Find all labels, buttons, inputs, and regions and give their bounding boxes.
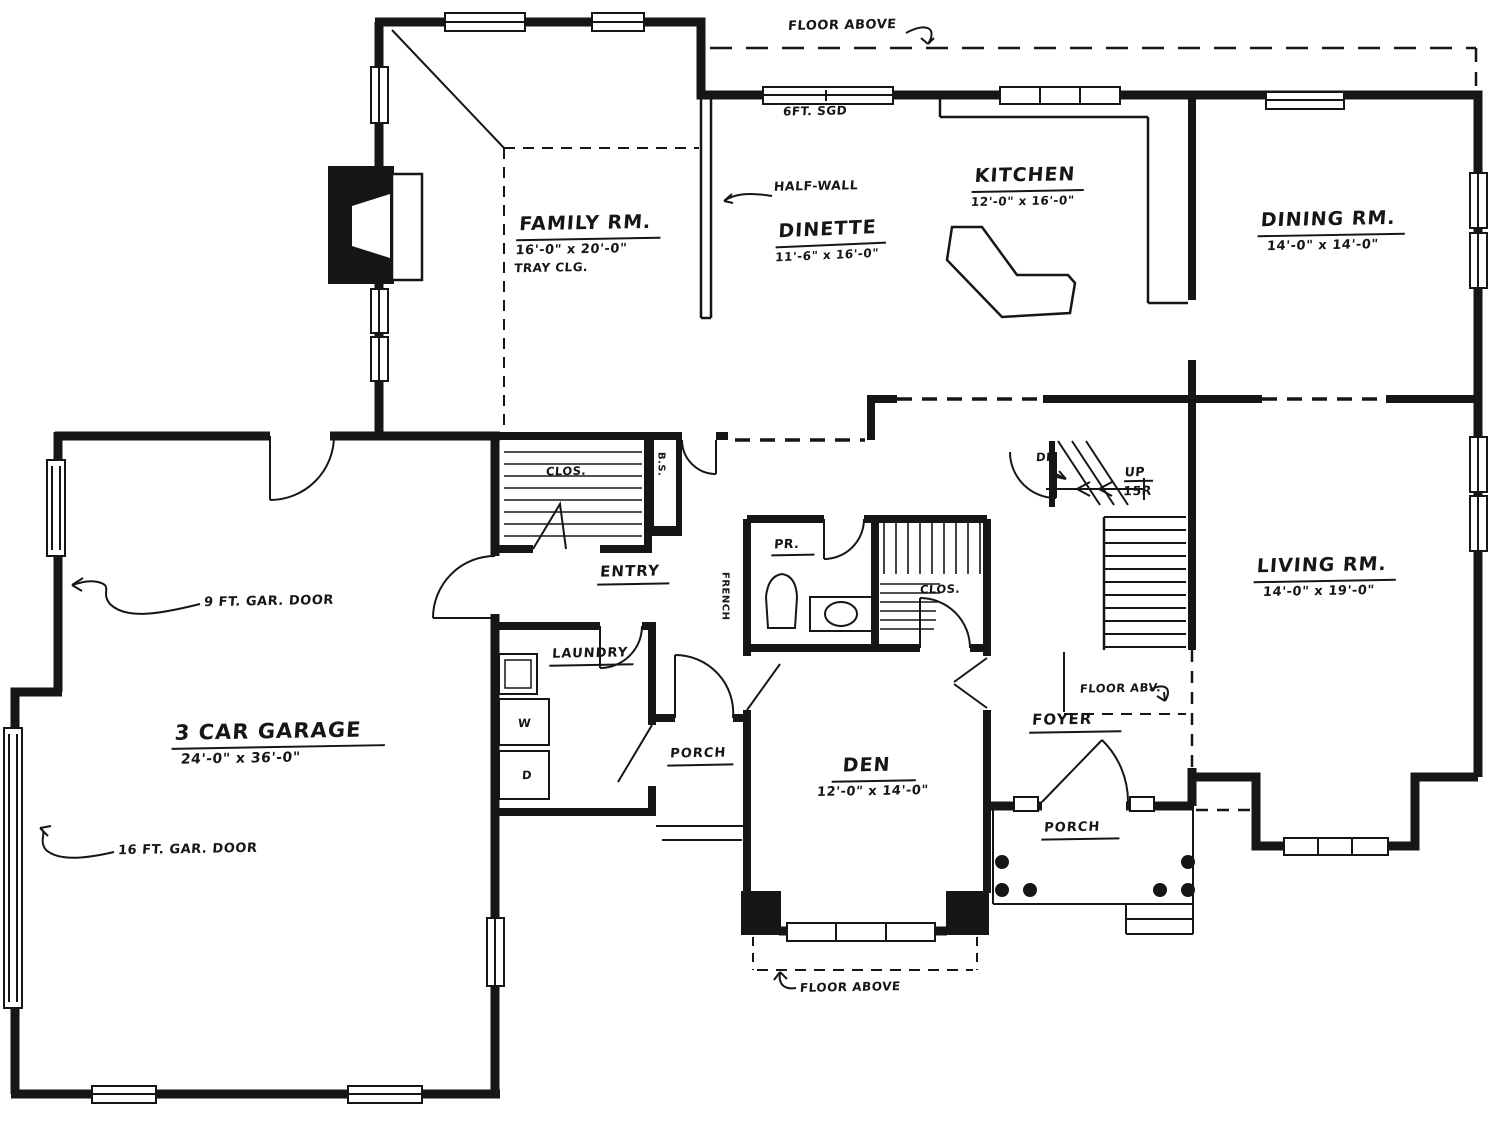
floor-plan: FLOOR ABOVE 6FT. SGD HALF-WALL FAMILY RM… bbox=[0, 0, 1500, 1121]
stair-up-label: UP bbox=[1124, 464, 1145, 480]
family-room-note: TRAY CLG. bbox=[514, 260, 589, 276]
stair-risers-label: 15R bbox=[1123, 479, 1153, 498]
garage-door-9ft-label: 9 FT. GAR. DOOR bbox=[203, 593, 334, 612]
stairs bbox=[1046, 441, 1186, 712]
front-porch-label: PORCH bbox=[1041, 819, 1121, 841]
bookshelf-label: B.S. bbox=[654, 452, 667, 476]
entry-closet-label: CLOS. bbox=[545, 464, 586, 479]
entry-label: ENTRY bbox=[597, 561, 670, 585]
garage-dims: 24'-0" x 36'-0" bbox=[180, 750, 301, 770]
den-dims: 12'-0" x 14'-0" bbox=[816, 783, 929, 801]
porch-columns bbox=[995, 855, 1195, 897]
closet-hatching bbox=[504, 452, 980, 629]
fireplace bbox=[328, 166, 422, 284]
hall-closet-label: CLOS. bbox=[919, 582, 960, 597]
living-room-dims: 14'-0" x 19'-0" bbox=[1262, 583, 1375, 601]
kitchen-label: KITCHEN bbox=[972, 163, 1087, 193]
washer-label: W bbox=[517, 716, 531, 731]
family-room-label: FAMILY RM. bbox=[516, 211, 662, 241]
rear-porch-steps bbox=[656, 826, 748, 840]
den-bay bbox=[741, 891, 989, 941]
stair-down-label: DN bbox=[1035, 450, 1056, 465]
rear-porch-label: PORCH bbox=[667, 745, 735, 766]
floor-above-top-label: FLOOR ABOVE bbox=[787, 17, 897, 35]
kitchen-island bbox=[947, 227, 1075, 317]
dining-room-label: DINING RM. bbox=[1258, 207, 1407, 237]
garage-door-16ft-label: 16 FT. GAR. DOOR bbox=[117, 841, 258, 860]
foyer-label: FOYER bbox=[1029, 709, 1123, 733]
french-door-label: FRENCH bbox=[718, 572, 731, 620]
garage-door-16ft-panel bbox=[4, 728, 22, 1008]
garage-label: 3 CAR GARAGE bbox=[171, 716, 386, 750]
laundry-label: LAUNDRY bbox=[549, 645, 634, 667]
half-wall-line bbox=[701, 95, 711, 318]
dryer-label: D bbox=[521, 768, 532, 783]
sliding-glass-door-label: 6FT. SGD bbox=[782, 103, 847, 119]
powder-room-label: PR. bbox=[771, 536, 816, 556]
dinette-label: DINETTE bbox=[776, 216, 888, 249]
bookshelf-niche bbox=[648, 432, 682, 536]
half-wall-label: HALF-WALL bbox=[773, 177, 858, 194]
kitchen-dims: 12'-0" x 16'-0" bbox=[970, 193, 1075, 210]
sink bbox=[825, 602, 857, 626]
floor-abv-foyer-label: FLOOR ABV. bbox=[1079, 680, 1161, 696]
dining-room-dims: 14'-0" x 14'-0" bbox=[1266, 237, 1379, 255]
toilet bbox=[766, 574, 797, 628]
garage-door-9ft-panel bbox=[47, 460, 65, 556]
floor-above-den-label: FLOOR ABOVE bbox=[799, 979, 901, 996]
living-room-label: LIVING RM. bbox=[1254, 553, 1398, 583]
den-label: DEN bbox=[832, 753, 918, 782]
family-room-dims: 16'-0" x 20'-0" bbox=[515, 241, 628, 259]
